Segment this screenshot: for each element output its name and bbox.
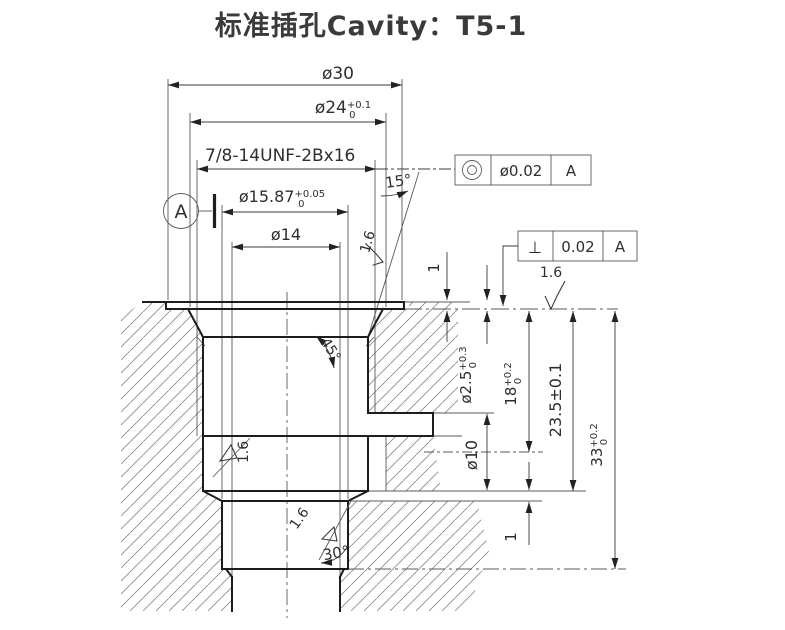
dim-label: 23.5±0.1 [546, 363, 565, 437]
thread-callout: 7/8-14UNF-2Bx16 [205, 146, 355, 166]
gdt-datum-ref: A [615, 238, 626, 256]
dim-total-depth: 33+0.20 [588, 311, 615, 569]
roughness-value: 1.6 [357, 229, 379, 255]
dim-vent-dia: ø2.5+0.30 [457, 265, 487, 404]
dim-pilot-dia: ø15.87+0.050 [222, 187, 348, 212]
dim-label: ø15.87+0.050 [239, 187, 325, 210]
gdt-datum-ref: A [566, 162, 577, 180]
dim-counterbore-dia: ø24+0.10 [190, 98, 386, 122]
angle-label: 15° [384, 170, 413, 192]
gdt-perpendicularity-frame: ⊥ 0.02 A [503, 231, 637, 306]
angle-label: 30° [321, 542, 350, 564]
concentricity-icon-inner [468, 166, 477, 175]
dim-label: ø2.5+0.30 [457, 346, 479, 403]
roughness-value: 1.6 [287, 505, 313, 532]
gdt-tolerance: ø0.02 [500, 162, 543, 180]
concentricity-icon [463, 161, 482, 180]
gdt-concentricity-frame: ø0.02 A [455, 155, 591, 185]
dim-label: ø10 [462, 440, 481, 470]
dim-label: 1 [425, 263, 443, 273]
dim-label: ø30 [322, 64, 354, 84]
gdt-leader [503, 246, 518, 306]
drawing-sheet: 标准插孔Cavity：T5-1 [0, 0, 785, 630]
dim-outer-recess-dia: ø30 [168, 64, 402, 85]
roughness-taper: 1.6 [357, 229, 386, 268]
datum-letter: A [175, 201, 188, 223]
roughness-value: 1.6 [236, 441, 252, 463]
dim-label: ø14 [271, 225, 301, 244]
section-hatching [121, 302, 489, 611]
dim-mid-depth: 23.5±0.1 [546, 311, 573, 491]
drawing-title: 标准插孔Cavity：T5-1 [0, 4, 742, 43]
roughness-seat: 1.6 [540, 265, 565, 309]
roughness-pilot-bore: 1.6 [213, 438, 252, 477]
dim-step-height: 1 [502, 462, 529, 545]
dim-bottom-dia: ø14 [232, 225, 340, 247]
dim-label: 18+0.20 [502, 362, 524, 405]
engineering-drawing: ø30 ø24+0.10 7/8-14UNF-2Bx16 ø15.87+0.05… [0, 0, 785, 630]
dim-label: 1 [502, 532, 520, 542]
dim-label: 33+0.20 [588, 423, 610, 466]
roughness-bottom-chamfer: 1.6 30° [287, 501, 351, 564]
perpendicularity-icon: ⊥ [528, 238, 542, 257]
dim-thread-depth: 18+0.20 [502, 311, 529, 452]
roughness-value: 1.6 [540, 265, 562, 281]
dim-label: ø24+0.10 [315, 98, 371, 121]
datum-feature-symbol: A [164, 194, 215, 229]
dim-thread-spec: 7/8-14UNF-2Bx16 [197, 146, 455, 169]
gdt-tolerance: 0.02 [561, 238, 594, 256]
